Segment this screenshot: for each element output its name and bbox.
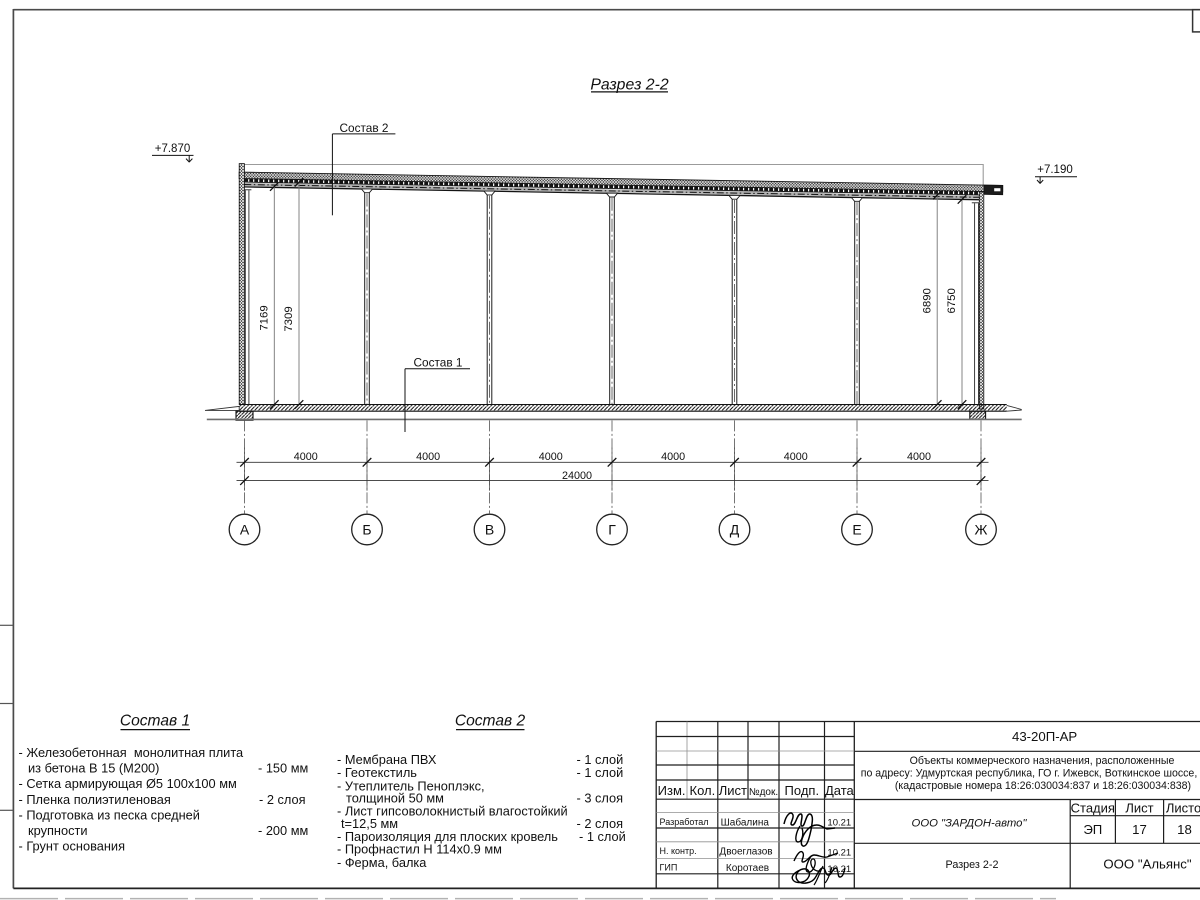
svg-text:(кадастровые номера 18:26:0300: (кадастровые номера 18:26:030034:837 и 1… <box>895 780 1191 792</box>
svg-text:Г: Г <box>608 522 616 538</box>
svg-text:- Железобетонная монолитная п: - Железобетонная монолитная плита <box>19 745 245 760</box>
svg-text:Разрез 2-2: Разрез 2-2 <box>945 859 998 871</box>
svg-text:ООО "Альянс": ООО "Альянс" <box>1103 857 1191 872</box>
svg-text:ГИП: ГИП <box>660 863 678 873</box>
svg-text:- Ферма, балка: - Ферма, балка <box>337 855 427 870</box>
svg-text:Б: Б <box>362 522 371 538</box>
svg-text:24000: 24000 <box>562 470 592 482</box>
svg-text:Е: Е <box>852 522 861 538</box>
svg-text:Коротаев: Коротаев <box>726 863 769 874</box>
svg-text:А: А <box>240 522 250 538</box>
svg-text:6890: 6890 <box>921 288 933 313</box>
svg-text:4000: 4000 <box>907 451 931 463</box>
svg-text:Ж: Ж <box>975 522 988 538</box>
svg-text:- Грунт основания: - Грунт основания <box>19 838 126 853</box>
svg-text:Состав 2: Состав 2 <box>340 121 389 135</box>
svg-text:Дата: Дата <box>825 783 855 798</box>
svg-text:4000: 4000 <box>416 451 440 463</box>
svg-text:17: 17 <box>1132 822 1147 837</box>
svg-text:10.21: 10.21 <box>827 818 851 829</box>
svg-text:№док.: №док. <box>749 787 778 798</box>
svg-text:Разрез 2-2: Разрез 2-2 <box>590 77 668 94</box>
svg-text:Двоеглазов: Двоеглазов <box>719 846 772 857</box>
svg-text:ООО "ЗАРДОН-авто": ООО "ЗАРДОН-авто" <box>912 817 1028 829</box>
svg-text:Лист: Лист <box>1125 800 1153 815</box>
svg-text:Состав 1: Состав 1 <box>120 712 190 729</box>
svg-text:Д: Д <box>730 522 740 538</box>
svg-text:4000: 4000 <box>661 451 685 463</box>
svg-text:Состав 2: Состав 2 <box>455 712 526 729</box>
svg-text:43-20П-АР: 43-20П-АР <box>1012 729 1077 744</box>
svg-text:Объекты коммерческого назначен: Объекты коммерческого назначения, распол… <box>910 755 1175 767</box>
svg-text:7309: 7309 <box>283 306 295 331</box>
svg-text:Разработал: Разработал <box>660 817 709 827</box>
svg-text:Подп.: Подп. <box>785 783 820 798</box>
svg-text:10.21: 10.21 <box>827 848 851 859</box>
svg-text:6750: 6750 <box>946 288 958 313</box>
svg-text:- 2 слоя: - 2 слоя <box>259 792 306 807</box>
svg-text:Н. контр.: Н. контр. <box>660 846 697 856</box>
svg-text:4000: 4000 <box>539 451 563 463</box>
svg-text:4000: 4000 <box>784 451 808 463</box>
svg-text:крупности: крупности <box>28 823 88 838</box>
svg-text:В: В <box>485 522 494 538</box>
svg-text:- 3 слоя: - 3 слоя <box>577 791 624 806</box>
svg-text:+7.190: +7.190 <box>1037 164 1073 176</box>
svg-text:- Подготовка из песка средней: - Подготовка из песка средней <box>19 807 200 822</box>
svg-text:Изм.: Изм. <box>658 783 686 798</box>
svg-text:Стадия: Стадия <box>1071 800 1115 815</box>
svg-text:- 1 слой: - 1 слой <box>579 829 626 844</box>
svg-text:Шабалина: Шабалина <box>721 816 770 828</box>
svg-text:- 1 слой: - 1 слой <box>577 765 624 780</box>
svg-text:из бетона В 15 (М200): из бетона В 15 (М200) <box>28 761 159 776</box>
svg-text:- Пленка полиэтиленовая: - Пленка полиэтиленовая <box>19 792 171 807</box>
svg-text:по адресу: Удмуртская республи: по адресу: Удмуртская республика, ГО г. … <box>861 768 1198 780</box>
svg-text:4000: 4000 <box>294 451 318 463</box>
svg-text:Состав 1: Состав 1 <box>414 356 463 370</box>
svg-text:- 150 мм: - 150 мм <box>258 761 308 776</box>
svg-text:+7.870: +7.870 <box>155 143 191 155</box>
svg-text:7169: 7169 <box>259 305 271 330</box>
svg-text:Листов: Листов <box>1166 800 1200 815</box>
svg-text:18: 18 <box>1177 822 1192 837</box>
svg-text:- Сетка армирующая Ø5 100х100: - Сетка армирующая Ø5 100х100 мм <box>19 776 237 791</box>
svg-text:- 200 мм: - 200 мм <box>258 823 308 838</box>
svg-text:Кол.: Кол. <box>690 783 716 798</box>
svg-text:ЭП: ЭП <box>1083 822 1102 837</box>
svg-text:Лист: Лист <box>719 783 747 798</box>
